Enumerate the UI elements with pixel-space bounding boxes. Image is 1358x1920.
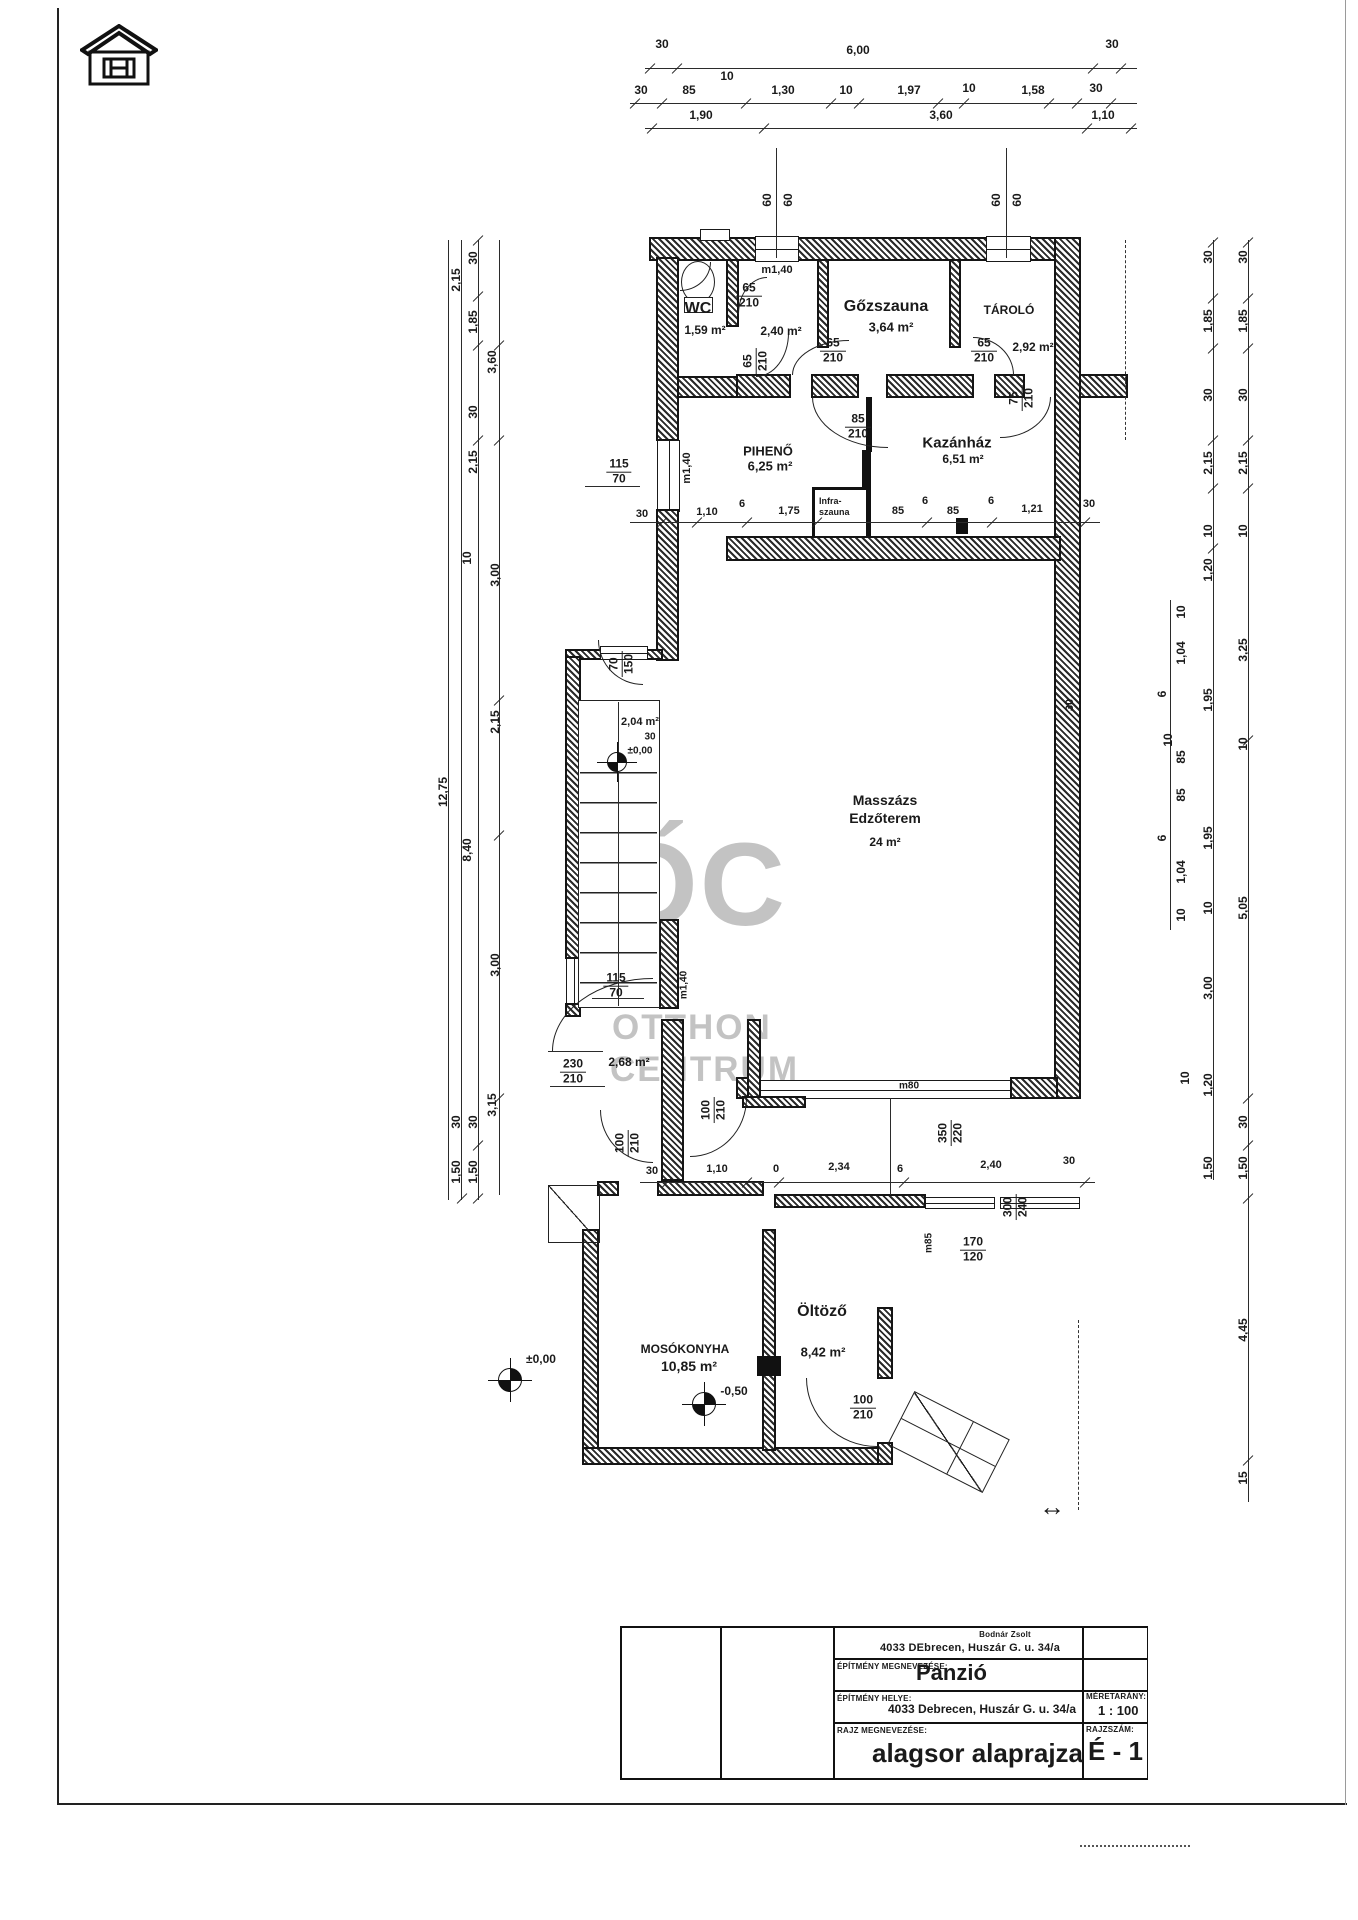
window-170 — [925, 1197, 995, 1209]
dim-label: 2,34 — [828, 1161, 849, 1173]
door-window-size-label: 11570 — [603, 972, 628, 1001]
dim-label: 30 — [1236, 1115, 1250, 1128]
door-window-size-label: 70150 — [608, 651, 637, 677]
door-window-size-label: 300240 — [1002, 1194, 1031, 1220]
dim-label: 1,85 — [466, 310, 480, 333]
wall — [950, 260, 960, 347]
room-area-lobby: 2,68 m² — [608, 1055, 649, 1069]
dim-label: 5,05 — [1236, 896, 1250, 919]
wall — [763, 1230, 775, 1450]
dim-label: 6 — [897, 1163, 903, 1175]
dim-line — [645, 68, 1137, 69]
dim-label: ↔ — [1039, 1492, 1065, 1523]
dim-label: 1,85 — [1201, 309, 1215, 332]
dim-line — [461, 240, 462, 1200]
dim-label: 30 — [1236, 388, 1250, 401]
dim-label: 85 — [1174, 750, 1188, 763]
wall — [662, 1020, 683, 1180]
dim-label: 1,95 — [1201, 826, 1215, 849]
dim-label: m1,40 — [679, 971, 690, 999]
light-shaft — [548, 1185, 600, 1243]
dim-label: 1,97 — [897, 83, 920, 97]
property-line — [1078, 1320, 1079, 1510]
wall — [658, 1182, 763, 1195]
dim-label: 2,15 — [1236, 451, 1250, 474]
dim-label: 1,50 — [466, 1160, 480, 1183]
dim-label: 85 — [1174, 788, 1188, 801]
dim-label: 30 — [644, 732, 655, 743]
wall — [878, 1308, 892, 1378]
dim-label: 10 — [1178, 1071, 1192, 1084]
dim-label: 10 — [839, 83, 852, 97]
window — [755, 236, 799, 262]
room-area-corridor: 2,40 m² — [760, 324, 801, 338]
dim-label: 2,15 — [449, 268, 463, 291]
level-marker-icon — [498, 1368, 522, 1392]
room-area-kazanhaz: 6,51 m² — [942, 452, 983, 466]
dim-label: 1,50 — [449, 1160, 463, 1183]
dim-line — [448, 240, 449, 1200]
room-name-wc: WC — [685, 300, 712, 318]
wall — [650, 238, 757, 260]
dim-label: 8,40 — [460, 838, 474, 861]
room-name-tarolo: TÁROLÓ — [984, 303, 1035, 317]
dim-label: 30 — [466, 251, 480, 264]
wall — [1055, 238, 1080, 1098]
dim-label: 0 — [773, 1163, 779, 1175]
house-logo-icon — [80, 24, 158, 90]
level-mark: ±0,00 — [628, 746, 653, 757]
dim-label: m1,40 — [761, 264, 792, 276]
wall-niche — [700, 229, 730, 241]
page-border-left — [57, 8, 59, 1805]
dim-label: 85 — [947, 505, 959, 517]
dim-label: 30 — [449, 1115, 463, 1128]
dotted-mark — [1080, 1845, 1190, 1847]
dim-label: 1,04 — [1174, 860, 1188, 883]
room-name-mosokonyha: MOSÓKONYHA — [641, 1342, 730, 1356]
wall — [598, 1182, 618, 1195]
room-area-wc: 1,59 m² — [684, 323, 725, 337]
dim-label: 1,10 — [1091, 108, 1114, 122]
axis-line — [776, 148, 777, 258]
owner-address: 4033 DEbrecen, Huszár G. u. 34/a — [845, 1642, 1095, 1654]
dim-label: 30 — [1105, 37, 1118, 51]
dim-label: 10 — [1201, 524, 1215, 537]
wall — [757, 1356, 781, 1376]
window — [986, 236, 1031, 262]
dim-label: 15 — [1236, 1471, 1250, 1484]
dim-label: 1,10 — [706, 1163, 727, 1175]
door-window-size-label: 65210 — [742, 348, 771, 374]
dim-label: 30 — [1064, 699, 1076, 711]
dim-label: 2,15 — [488, 710, 502, 733]
property-line — [1125, 240, 1126, 440]
wall — [775, 1195, 925, 1207]
door-window-size-label: 65210 — [820, 337, 846, 366]
wall — [583, 1230, 598, 1460]
dim-label: 30 — [646, 1165, 658, 1177]
dim-label: 1,95 — [1201, 688, 1215, 711]
dim-label: 60 — [989, 193, 1003, 206]
dim-label: 3,00 — [488, 563, 502, 586]
dim-label: 6 — [1155, 691, 1169, 698]
dim-label: 6 — [988, 495, 994, 507]
wall — [660, 920, 678, 1008]
room-name-piheno: PIHENŐ — [743, 444, 793, 459]
wall-line — [890, 1098, 891, 1195]
dim-label: 1,10 — [696, 506, 717, 518]
room-area-tarolo: 2,92 m² — [1012, 340, 1053, 354]
dim-label: 1,50 — [1201, 1156, 1215, 1179]
dim-label: 1,21 — [1021, 503, 1042, 515]
dim-label: 30 — [466, 405, 480, 418]
dim-label: 1,20 — [1201, 558, 1215, 581]
dim-label: 3,60 — [929, 108, 952, 122]
dim-label: 1,04 — [1174, 641, 1188, 664]
wall — [887, 375, 973, 397]
door-window-size-label: 75210 — [1008, 385, 1037, 411]
dim-label: 10 — [460, 551, 474, 564]
room-area-oltozo: 8,42 m² — [801, 1345, 846, 1360]
room-name-gozszauna: Gőzszauna — [844, 298, 928, 316]
room-name-oltozo: Öltöző — [797, 1303, 847, 1321]
window — [657, 440, 680, 512]
site-value: 4033 Debrecen, Huszár G. u. 34/a — [888, 1702, 1076, 1716]
dim-label: 6 — [922, 495, 928, 507]
door-window-size-label: 65210 — [971, 337, 997, 366]
dim-label: 10 — [1201, 901, 1215, 914]
dim-label: 10 — [1174, 908, 1188, 921]
room-area-masszazs: 24 m² — [869, 835, 900, 849]
level-marker-icon — [692, 1392, 716, 1416]
level-marker-icon — [607, 752, 627, 772]
room-area-gozszauna: 3,64 m² — [869, 320, 914, 335]
dim-label: 2,15 — [466, 450, 480, 473]
dim-label: Edzőterem — [849, 810, 921, 826]
door-window-size-label: 11570 — [606, 458, 631, 487]
dim-line — [478, 240, 479, 1200]
wall — [678, 377, 737, 397]
dim-label: 10 — [720, 69, 733, 83]
wall — [737, 375, 790, 397]
axis-line — [1006, 148, 1007, 258]
owner-name: Bodnár Zsolt — [880, 1630, 1130, 1639]
dim-label: m1,40 — [681, 452, 693, 483]
wall — [657, 258, 678, 440]
dim-label: 10 — [962, 81, 975, 95]
door-window-size-label: 350220 — [937, 1120, 966, 1146]
building-value: Panzió — [916, 1660, 987, 1686]
dim-label: 10 — [1161, 733, 1175, 746]
dim-label: 1,20 — [1201, 1073, 1215, 1096]
dim-label: 4,45 — [1236, 1318, 1250, 1341]
dim-label: 30 — [1201, 388, 1215, 401]
dim-label: 12,75 — [436, 777, 450, 807]
door-window-size-label: 100210 — [700, 1097, 729, 1123]
floor-plan-sheet: ŐC OTTHON CENTRUM Infra- szauna — [0, 0, 1358, 1920]
dim-line — [630, 103, 1137, 104]
drawing-label: RAJZ MEGNEVEZÉSE: — [837, 1726, 927, 1735]
dim-label: 10 — [1174, 605, 1188, 618]
dim-label: 6 — [739, 498, 745, 510]
dim-label: 60 — [781, 193, 795, 206]
dim-label: 6,00 — [846, 43, 869, 57]
infra-sauna-label: Infra- — [815, 490, 866, 506]
door-window-size-label: 100210 — [850, 1394, 876, 1423]
wall — [1080, 375, 1127, 397]
door-window-size-label: 230210 — [560, 1058, 586, 1087]
dim-label: 3,60 — [485, 350, 499, 373]
dim-label: 85 — [682, 83, 695, 97]
dim-line — [630, 522, 1100, 523]
wall — [956, 518, 968, 534]
dim-label: 85 — [892, 505, 904, 517]
drawing-value: alagsor alaprajza — [872, 1738, 1083, 1769]
dim-label: 2,40 — [980, 1159, 1001, 1171]
page-border-bottom — [57, 1803, 1347, 1805]
dim-line — [1170, 600, 1171, 930]
dim-label: 60 — [760, 193, 774, 206]
room-area-stair: 2,04 m² — [621, 716, 659, 728]
dim-label: 1,30 — [771, 83, 794, 97]
door-window-size-label: 100210 — [614, 1130, 643, 1156]
level-mark: ±0,00 — [526, 1352, 556, 1366]
page-border-right — [1345, 0, 1346, 1805]
wall — [657, 510, 678, 660]
wall — [748, 1020, 760, 1097]
dim-label: 3,00 — [1201, 976, 1215, 999]
dim-label: 60 — [1010, 193, 1024, 206]
wall — [583, 1448, 883, 1464]
scale-value: 1 : 100 — [1098, 1703, 1138, 1718]
dim-label: 10 — [1236, 737, 1250, 750]
room-area-mosokonyha: 10,85 m² — [661, 1358, 717, 1374]
dim-line — [645, 128, 1137, 129]
stair-center-line — [618, 702, 619, 1006]
dim-label: 2,15 — [1201, 451, 1215, 474]
title-block: Bodnár Zsolt 4033 DEbrecen, Huszár G. u.… — [620, 1626, 1148, 1780]
wall — [797, 238, 988, 260]
dim-label: 6 — [1155, 835, 1169, 842]
dim-label: 30 — [634, 83, 647, 97]
door-window-size-label: 65210 — [736, 282, 762, 311]
wall — [1011, 1078, 1057, 1098]
room-name-masszazs: Masszázs — [853, 792, 918, 808]
wall — [818, 260, 828, 347]
dim-line — [640, 1182, 1095, 1183]
wall — [743, 1097, 805, 1107]
wall — [812, 375, 858, 397]
door-window-size-label: 170120 — [960, 1236, 986, 1265]
dim-label: 30 — [1063, 1155, 1075, 1167]
bench-sketch — [887, 1391, 1010, 1493]
dim-label: 1,58 — [1021, 83, 1044, 97]
dim-label: 30 — [1089, 81, 1102, 95]
dim-label: 1,90 — [689, 108, 712, 122]
number-value: É - 1 — [1088, 1736, 1143, 1767]
dim-label: 30 — [466, 1115, 480, 1128]
dim-label: 3,25 — [1236, 638, 1250, 661]
dim-line — [1248, 240, 1249, 1502]
dim-label: 10 — [1236, 524, 1250, 537]
room-name-kazanhaz: Kazánház — [922, 435, 991, 452]
dim-label: 30 — [636, 508, 648, 520]
dim-label: m80 — [899, 1081, 919, 1092]
level-mark: -0,50 — [720, 1384, 747, 1398]
dim-label: 30 — [655, 37, 668, 51]
dim-label: 3,00 — [488, 953, 502, 976]
dim-label: 1,50 — [1236, 1156, 1250, 1179]
room-area-piheno: 6,25 m² — [748, 459, 793, 474]
dim-label: 1,75 — [778, 505, 799, 517]
number-label: RAJZSZÁM: — [1086, 1725, 1134, 1734]
scale-label: MÉRETARÁNY: — [1086, 1692, 1146, 1701]
dim-label: 30 — [1201, 250, 1215, 263]
dim-label: 3,15 — [485, 1093, 499, 1116]
dim-label: 30 — [1083, 498, 1095, 510]
dim-label: m85 — [924, 1233, 935, 1253]
wall-line — [548, 1051, 603, 1052]
dim-label: 1,85 — [1236, 309, 1250, 332]
infra-sauna-box: Infra- szauna — [812, 487, 869, 541]
wall — [727, 537, 1060, 560]
dim-label: 30 — [1236, 250, 1250, 263]
door-window-size-label: 85210 — [845, 413, 871, 442]
